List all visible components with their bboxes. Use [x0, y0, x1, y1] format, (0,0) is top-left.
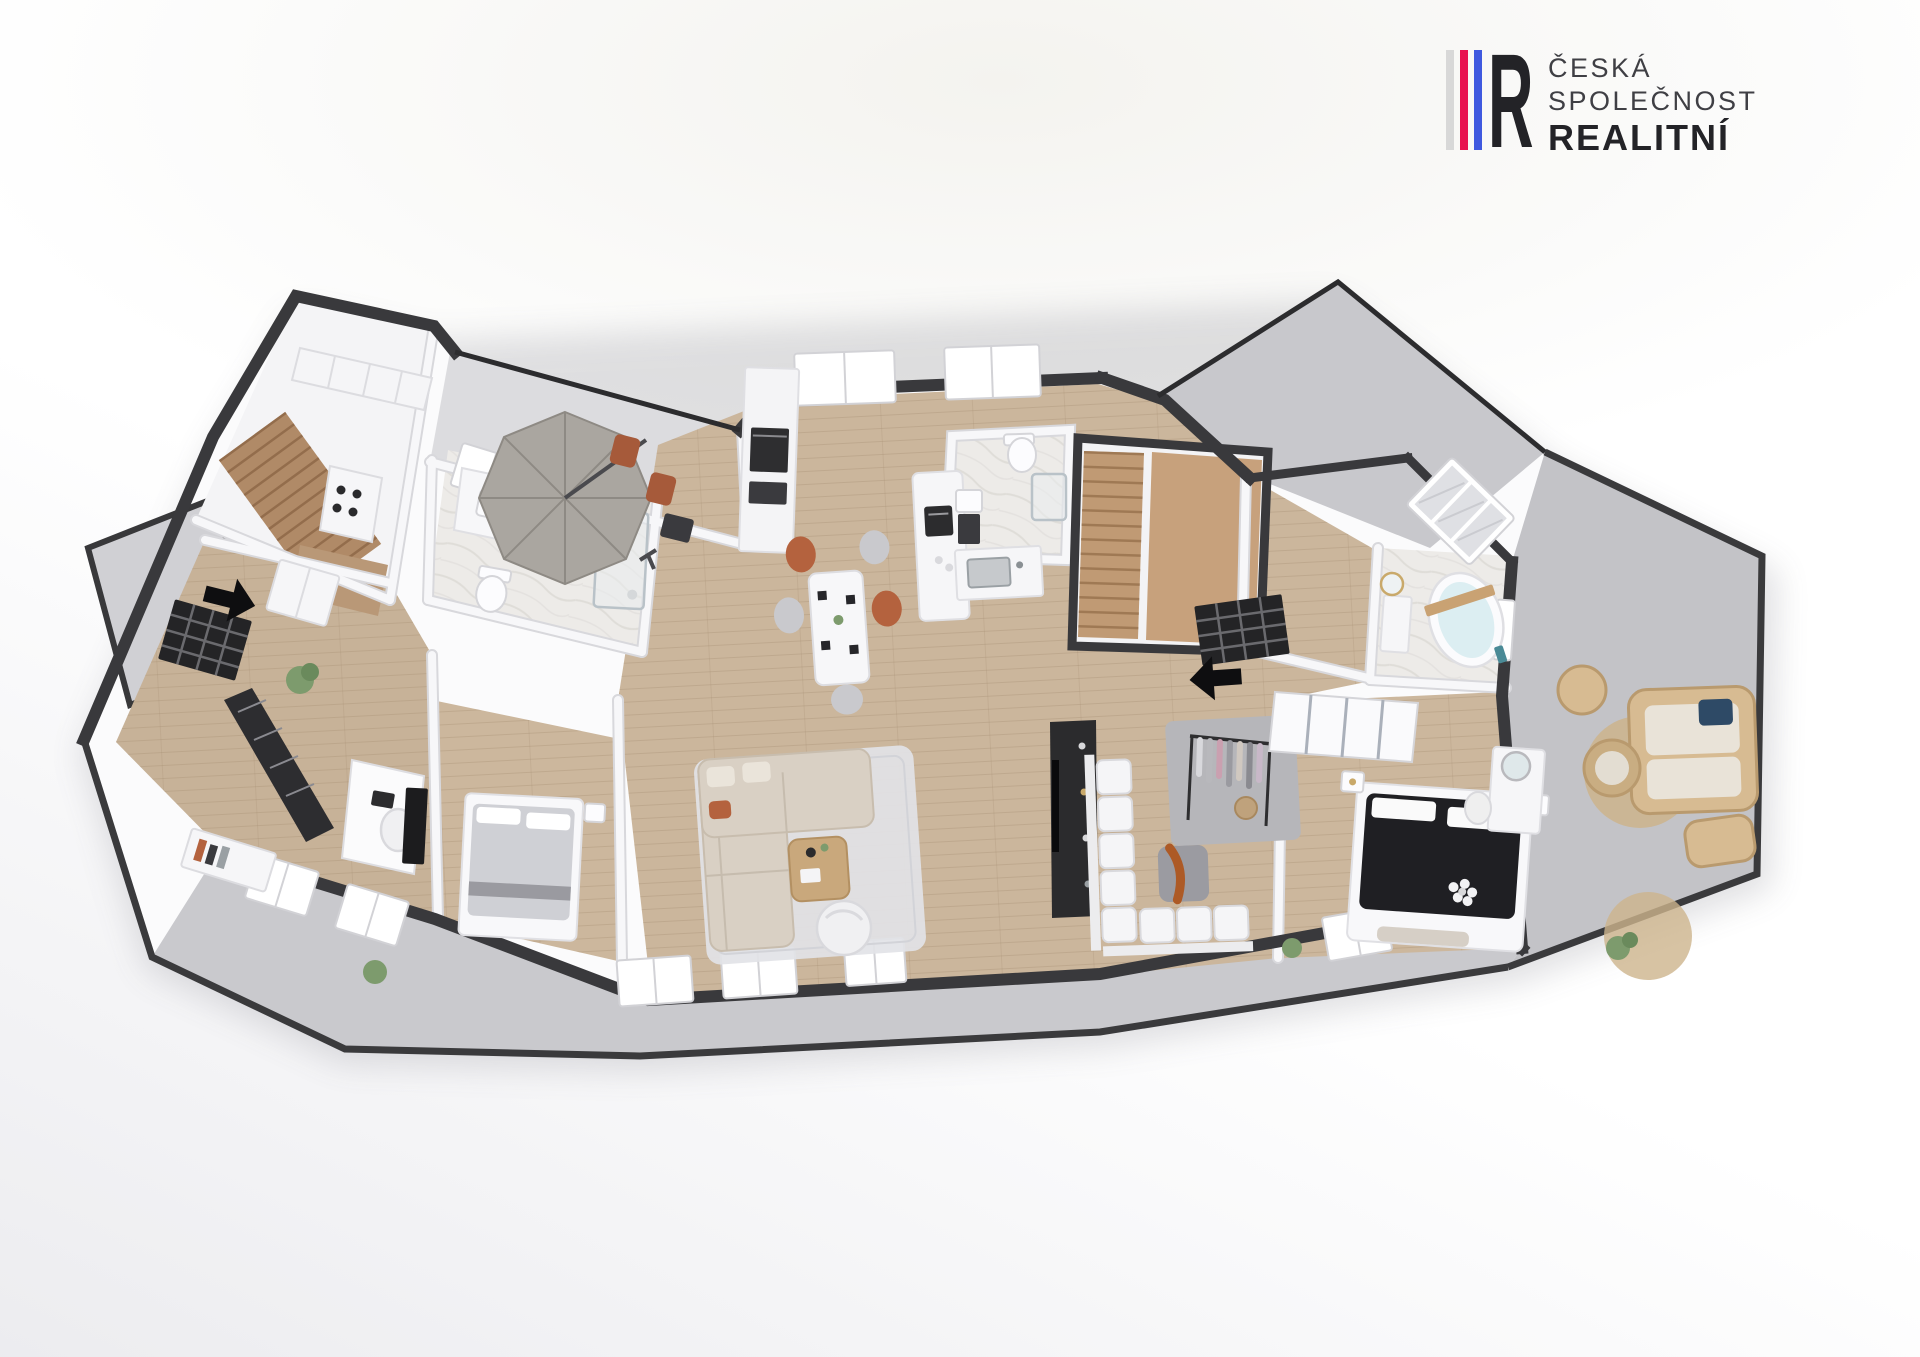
round-mirror — [1381, 573, 1403, 595]
dining-table — [808, 570, 870, 685]
shower — [1032, 474, 1066, 520]
rattan-sofa — [1628, 686, 1758, 814]
washbasin-vanity — [1380, 595, 1412, 653]
laundry-basket — [1235, 797, 1257, 819]
page: R ČESKÁ SPOLEČNOST REALITNÍ — [0, 0, 1920, 1357]
kitchen-sink-counter — [955, 546, 1043, 600]
rattan-armchair — [1558, 666, 1606, 714]
sliding-wardrobe — [1269, 692, 1418, 762]
egg-chair — [817, 901, 871, 955]
balcony-plant — [363, 960, 387, 984]
nightstand — [584, 803, 605, 822]
bathroom-cabinet — [958, 514, 980, 544]
rattan-lounger — [1683, 813, 1757, 868]
jute-rug — [1604, 892, 1692, 980]
logo-stripe-blue — [1474, 50, 1482, 150]
logo-mark: R — [1446, 50, 1534, 150]
logo-stripe-red — [1460, 50, 1468, 150]
vanity-stool — [1465, 792, 1491, 824]
accent-pillow — [708, 800, 731, 819]
coffee-machine — [924, 505, 954, 536]
logo-text: ČESKÁ SPOLEČNOST REALITNÍ — [1548, 50, 1758, 157]
logo-line-3: REALITNÍ — [1548, 119, 1758, 157]
wall-tv — [402, 787, 428, 864]
kitchen-sink — [967, 557, 1010, 587]
tv-screen — [1052, 760, 1059, 852]
logo-stripe-gray — [1446, 50, 1454, 150]
gas-hob — [320, 466, 382, 542]
toilet — [1008, 438, 1036, 472]
round-mirror — [1501, 751, 1531, 781]
logo-line-1: ČESKÁ — [1548, 52, 1758, 85]
coffee-table — [788, 836, 850, 902]
potted-plant — [1282, 938, 1302, 958]
ottoman — [1158, 845, 1210, 903]
tall-cabinet-oven — [739, 367, 799, 553]
floor-plan-render — [0, 0, 1920, 1357]
logo-line-2: SPOLEČNOST — [1548, 85, 1758, 118]
logo-r-letter: R — [1488, 50, 1533, 150]
vanity-table — [1487, 747, 1545, 834]
washbasin — [956, 490, 982, 512]
navy-pillow — [1698, 699, 1733, 726]
brand-logo: R ČESKÁ SPOLEČNOST REALITNÍ — [1446, 50, 1758, 157]
entry-door-right — [1194, 594, 1289, 666]
